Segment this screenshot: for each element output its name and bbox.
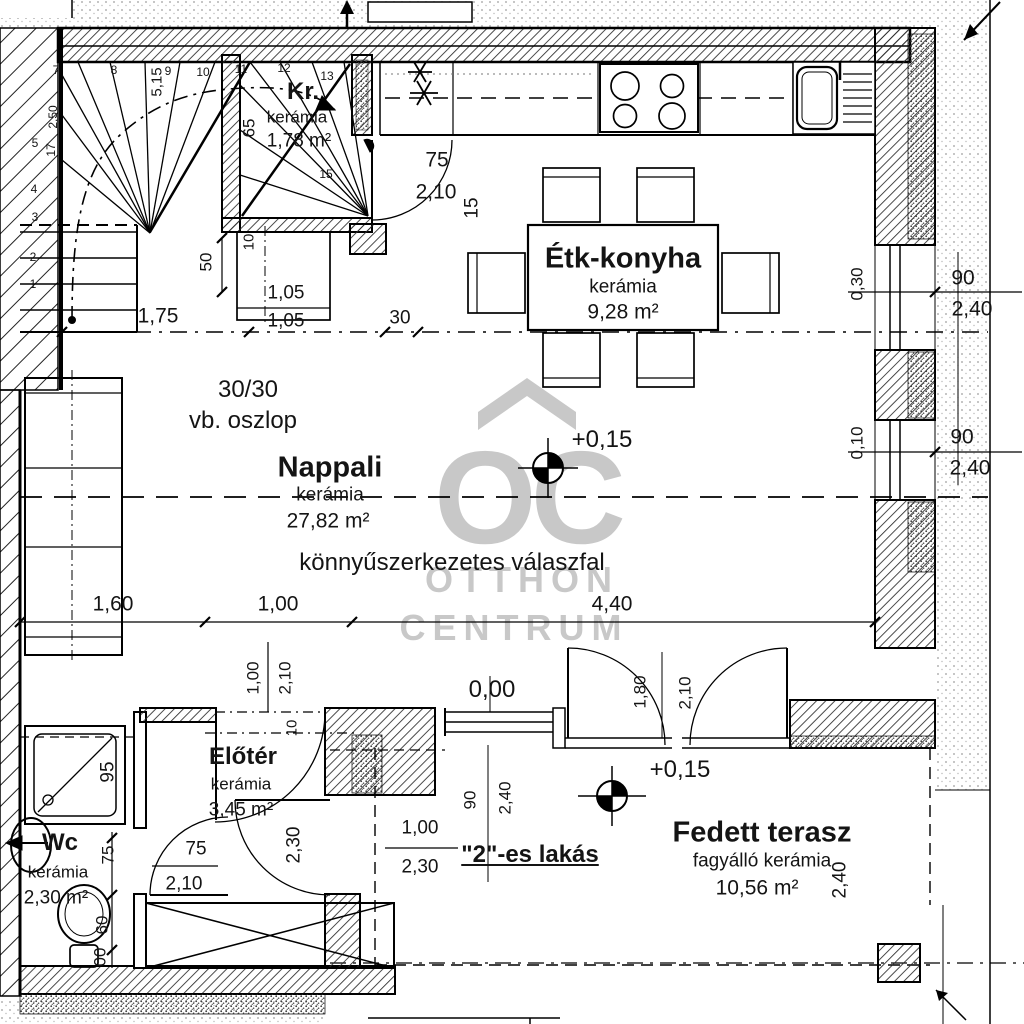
dim-win1-width: 90 <box>951 268 974 289</box>
dim-entry-width: 1,00 <box>245 661 262 694</box>
dim-eloter-door: 2,30 <box>285 827 304 864</box>
room-kr-area: 1,78 m² <box>267 132 331 151</box>
rc-column-30x30 <box>350 224 386 254</box>
room-konyha-name: Étk-konyha <box>545 245 701 274</box>
room-wc-name: Wc <box>42 831 78 855</box>
stair-step-4: 4 <box>31 183 38 195</box>
level-mark-terasz: +0,15 <box>650 758 711 782</box>
dim-win3-width: 90 <box>462 791 479 810</box>
dim-box-105a: 1,05 <box>268 284 305 303</box>
stair-step-13: 13 <box>320 70 333 82</box>
plan-linework <box>0 0 1024 1024</box>
dim-french-height: 2,10 <box>677 676 694 709</box>
room-eloter-name: Előtér <box>209 745 277 769</box>
dim-kr-door-w: 75 <box>425 150 448 171</box>
dim-kr-65: 65 <box>241 119 258 138</box>
note-column-size: 30/30 <box>218 378 278 402</box>
stair-step-12: 12 <box>277 62 290 74</box>
stair-step-7: 7 <box>53 64 60 76</box>
dim-shower-95: 95 <box>99 761 118 782</box>
room-konyha-area: 9,28 m² <box>587 302 658 323</box>
dim-win3-height: 2,40 <box>497 781 514 814</box>
dim-30: 30 <box>389 309 410 328</box>
dim-10-eloter: 10 <box>285 720 300 737</box>
stair-step-5: 5 <box>32 137 39 149</box>
stove-icon <box>600 64 698 132</box>
room-nappali-material: kerámia <box>296 486 364 505</box>
room-terasz-name: Fedett terasz <box>673 819 852 848</box>
dim-terrace-depth: 2,40 <box>831 862 850 899</box>
dim-wall-15: 15 <box>463 197 482 218</box>
dim-win2-offset: 0,10 <box>849 426 866 459</box>
stair-step-3: 3 <box>32 211 39 223</box>
dim-stair-515: 5,15 <box>150 67 165 96</box>
dim-wc-door-h: 2,10 <box>166 875 203 894</box>
dim-wc-door-w: 75 <box>185 840 206 859</box>
dim-50: 50 <box>198 253 215 272</box>
dim-00: 00 <box>92 948 109 967</box>
stair-step-15: 15 <box>319 168 332 180</box>
stair-note-250: 2,50 <box>47 105 59 128</box>
dim-win1-offset: 0,30 <box>849 267 866 300</box>
dim-440: 4,40 <box>592 594 633 615</box>
dim-100: 1,00 <box>258 594 299 615</box>
dim-box-105b: 1,05 <box>268 312 305 331</box>
room-terasz-material: fagyálló kerámia <box>693 852 831 871</box>
dim-win1-height: 2,40 <box>952 299 993 320</box>
dim-win2-height: 2,40 <box>950 458 991 479</box>
level-mark-nappali: +0,15 <box>572 428 633 452</box>
dim-entry-height: 2,10 <box>277 661 294 694</box>
level-mark-zero: 0,00 <box>469 678 516 702</box>
room-nappali-name: Nappali <box>278 454 383 483</box>
room-kr-material: kerámia <box>267 109 327 126</box>
terrace-column <box>878 944 920 982</box>
room-nappali-area: 27,82 m² <box>287 511 370 532</box>
note-partition: könnyűszerkezetes válaszfal <box>299 551 604 575</box>
stair-note-17: 17 <box>45 143 57 156</box>
kitchen-counter <box>380 62 875 135</box>
room-eloter-area: 3,45 m² <box>209 801 273 820</box>
stair-step-10: 10 <box>196 66 209 78</box>
stair-step-1: 1 <box>30 278 37 290</box>
dim-175: 1,75 <box>138 306 179 327</box>
stair-step-8: 8 <box>111 64 118 76</box>
note-unit-label: "2"-es lakás <box>461 843 599 867</box>
dim-french-width: 1,80 <box>632 675 649 708</box>
floor-plan: OC OTTHON CENTRUM <box>0 0 1024 1024</box>
room-terasz-area: 10,56 m² <box>716 878 799 899</box>
dim-win2-width: 90 <box>950 427 973 448</box>
dim-kr-door-h: 2,10 <box>416 182 457 203</box>
room-kr-name: Kr. <box>287 80 319 104</box>
sink-icon <box>793 62 875 134</box>
stair-step-9: 9 <box>165 65 172 77</box>
dim-10-kr: 10 <box>242 234 257 251</box>
room-konyha-material: kerámia <box>589 278 657 297</box>
stair-step-11: 11 <box>235 63 247 75</box>
stair-step-2: 2 <box>30 251 37 263</box>
dim-75-v: 75 <box>100 846 117 865</box>
dim-open-height: 2,30 <box>402 858 439 877</box>
dim-160: 1,60 <box>93 594 134 615</box>
dim-60: 60 <box>94 916 111 935</box>
room-eloter-material: kerámia <box>211 776 271 793</box>
note-column-type: vb. oszlop <box>189 409 297 433</box>
room-wc-area: 2,30 m² <box>24 889 88 908</box>
furniture <box>25 226 394 968</box>
room-wc-material: kerámia <box>28 864 88 881</box>
dim-open-width: 1,00 <box>402 819 439 838</box>
